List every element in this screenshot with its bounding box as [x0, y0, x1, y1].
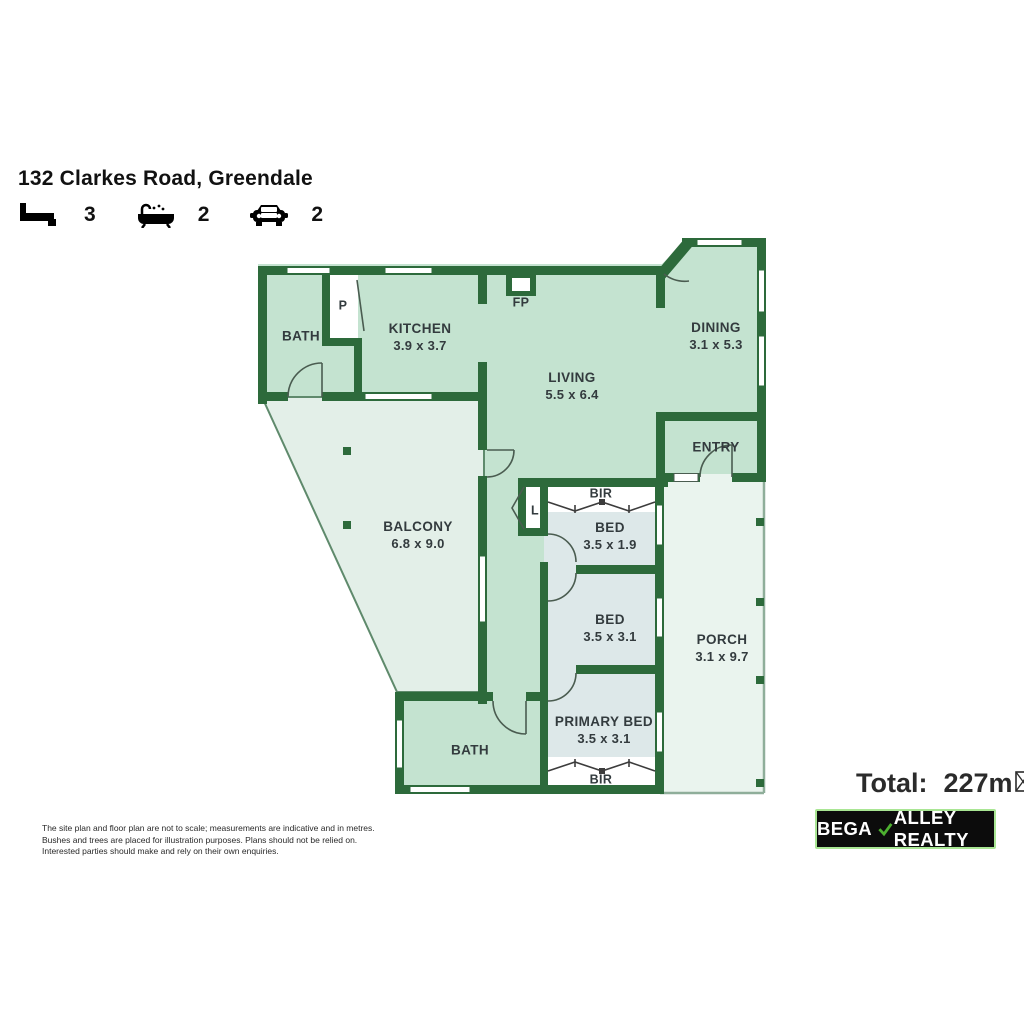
- brand-logo: BEGA ALLEY REALTY: [815, 809, 996, 849]
- porch-post: [756, 518, 764, 526]
- marker-linen: L: [531, 503, 539, 520]
- porch-post: [756, 676, 764, 684]
- room-label-kitchen: KITCHEN 3.9 x 3.7: [389, 320, 452, 354]
- area-unit-missing-glyph-icon: [1015, 771, 1024, 792]
- marker-pantry: P: [339, 298, 348, 315]
- room-label-bed-1: BED 3.5 x 1.9: [583, 519, 636, 553]
- room-label-porch: PORCH 3.1 x 9.7: [695, 631, 748, 665]
- disclaimer-line: The site plan and floor plan are not to …: [42, 823, 375, 835]
- floorplan-svg: [0, 0, 1024, 1024]
- brand-suffix: ALLEY REALTY: [894, 807, 994, 851]
- room-label-dining: DINING 3.1 x 5.3: [689, 319, 742, 353]
- marker-bir-1: BIR: [590, 486, 613, 503]
- total-area: Total: 227m: [856, 768, 1024, 799]
- room-label-bath-top: BATH: [282, 328, 320, 345]
- total-label: Total:: [856, 768, 927, 799]
- fireplace-opening: [512, 278, 530, 291]
- brand-prefix: BEGA: [817, 818, 872, 840]
- porch-post: [756, 598, 764, 606]
- page-root: { "header": { "title": "132 Clarkes Road…: [0, 0, 1024, 1024]
- balcony-post: [343, 447, 351, 455]
- marker-fireplace: FP: [513, 295, 530, 312]
- disclaimer-line: Interested parties should make and rely …: [42, 846, 375, 858]
- checkmark-icon: [878, 820, 893, 839]
- room-label-bed-2: BED 3.5 x 3.1: [583, 611, 636, 645]
- room-label-bath-bottom: BATH: [451, 742, 489, 759]
- disclaimer: The site plan and floor plan are not to …: [42, 823, 375, 858]
- room-label-living: LIVING 5.5 x 6.4: [545, 369, 598, 403]
- entry-step: [674, 474, 698, 482]
- total-value: 227m: [943, 768, 1012, 799]
- disclaimer-line: Bushes and trees are placed for illustra…: [42, 835, 375, 847]
- room-label-primary-bed: PRIMARY BED 3.5 x 3.1: [555, 713, 653, 747]
- marker-bir-2: BIR: [590, 772, 613, 789]
- balcony-post: [343, 521, 351, 529]
- porch-post: [756, 779, 764, 787]
- room-label-balcony: BALCONY 6.8 x 9.0: [383, 518, 453, 552]
- room-label-entry: ENTRY: [692, 439, 739, 456]
